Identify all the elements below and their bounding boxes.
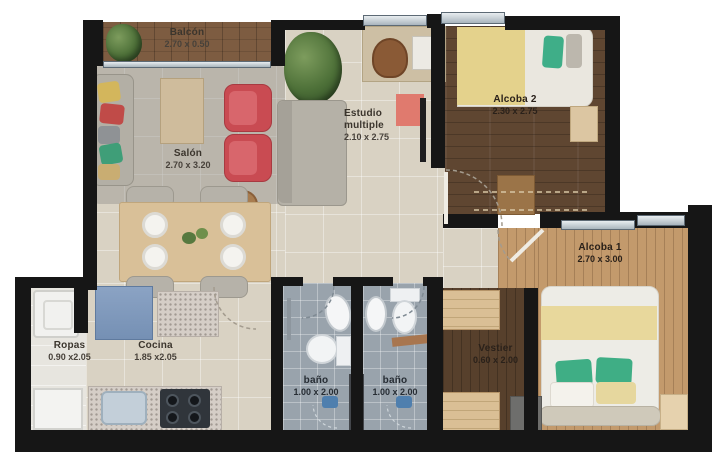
plate (220, 244, 246, 270)
wall (605, 16, 620, 222)
estudio-plant (284, 32, 342, 104)
toilet (392, 300, 417, 334)
label-bano2: baño 1.00 x 2.00 (359, 375, 431, 398)
wall (15, 430, 712, 452)
console-table (160, 78, 204, 144)
kitchen-island (95, 286, 153, 340)
washing-machine (33, 290, 79, 338)
closet-table (497, 175, 535, 215)
table-plant (182, 232, 196, 244)
wall (271, 277, 303, 286)
wall (688, 205, 712, 452)
towel-bar (287, 298, 291, 340)
window (637, 215, 685, 226)
desk-chair (372, 38, 408, 78)
label-cocina: Cocina 1.85 x2.05 (103, 340, 208, 363)
laundry-sink (33, 388, 83, 430)
sofa-pillow-khaki (98, 164, 120, 180)
balcony-railing (103, 61, 271, 68)
bed-pillow-green (595, 357, 632, 385)
estudio-sofa (277, 100, 347, 206)
plate (142, 244, 168, 270)
label-bano1: baño 1.00 x 2.00 (281, 375, 351, 398)
wall (271, 20, 285, 66)
label-alcoba1: Alcoba 1 2.70 x 3.00 (538, 242, 662, 265)
wardrobe-shelf (440, 392, 500, 432)
wall (443, 214, 498, 228)
label-vestier: Vestier 0.60 x 2.00 (448, 343, 543, 366)
bed-pillow-yellow (596, 382, 636, 404)
label-estudio: Estudio multiple 2.10 x 2.75 (344, 108, 434, 143)
bed-pillow-white (550, 382, 594, 408)
window (441, 12, 505, 24)
toilet (306, 334, 338, 364)
wall (285, 20, 365, 30)
wall (74, 283, 88, 333)
wall (505, 16, 620, 30)
stove-burner (166, 394, 179, 407)
wall (431, 20, 445, 168)
label-balcon: Balcón 2.70 x 0.50 (127, 27, 247, 50)
bed-pillow-green (542, 35, 564, 68)
wall (333, 277, 393, 286)
stove-burner (188, 394, 201, 407)
floor-alcoba1-doorway (498, 228, 538, 290)
dining-table (119, 202, 271, 282)
sofa-pillow-yellow (97, 81, 122, 104)
sofa-pillow-gray (98, 126, 120, 144)
table-plant (196, 228, 208, 239)
bathroom-sink (365, 296, 387, 332)
nightstand (660, 394, 688, 430)
floor-plan: Balcón 2.70 x 0.50 Salón 2.70 x 3.20 Est… (0, 0, 722, 463)
window (561, 220, 635, 230)
bed-blanket-yellow (541, 306, 657, 340)
bed-pillow-gray (566, 34, 582, 68)
label-salon: Salón 2.70 x 3.20 (128, 148, 248, 171)
toilet-tank (336, 336, 351, 366)
kitchen-sink (101, 391, 147, 425)
sofa-pillow-green (98, 142, 123, 166)
floor-hall-east (443, 228, 498, 288)
sofa-pillow-red (99, 103, 125, 125)
wardrobe-shelf (440, 290, 500, 330)
wall (351, 281, 363, 430)
kitchen-counter (157, 291, 219, 337)
plate (142, 212, 168, 238)
wall (423, 277, 443, 286)
stove-burner (188, 411, 201, 424)
wall (15, 277, 31, 452)
bed-bench (539, 406, 661, 426)
wall (427, 281, 443, 430)
wall (271, 281, 283, 430)
stove-burner (166, 411, 179, 424)
wall (83, 58, 97, 290)
plate (220, 212, 246, 238)
armchair (224, 84, 272, 132)
label-alcoba2: Alcoba 2 2.30 x 2.75 (455, 94, 575, 117)
window (363, 15, 427, 26)
